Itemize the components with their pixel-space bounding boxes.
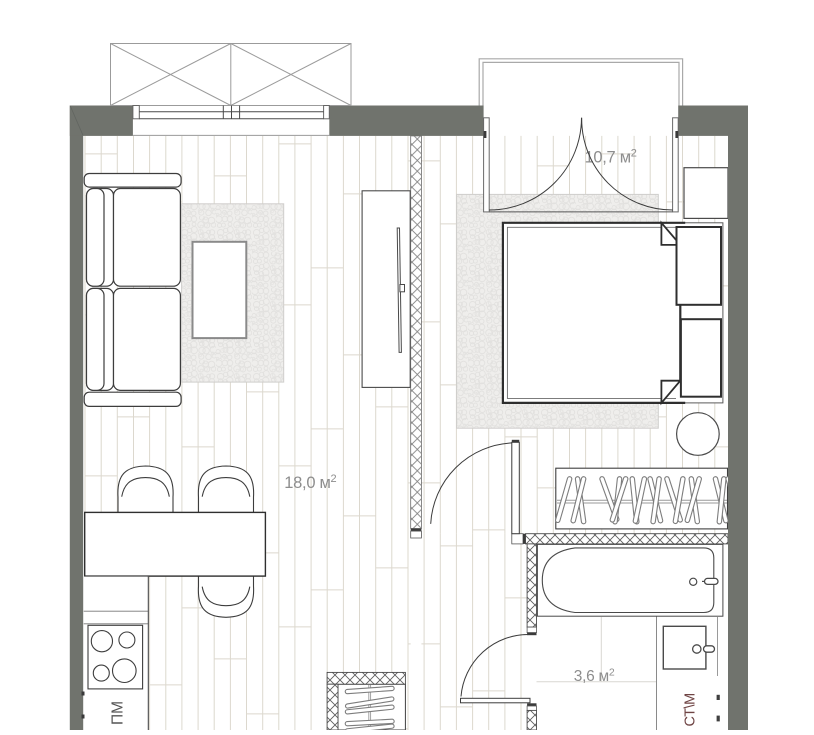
svg-text:18,0 м2: 18,0 м2: [284, 473, 336, 492]
svg-text:СТ\М: СТ\М: [683, 693, 699, 726]
svg-text:ПМ: ПМ: [110, 701, 127, 725]
svg-text:3,6 м2: 3,6 м2: [574, 667, 615, 686]
svg-text:10,7 м2: 10,7 м2: [585, 148, 637, 167]
